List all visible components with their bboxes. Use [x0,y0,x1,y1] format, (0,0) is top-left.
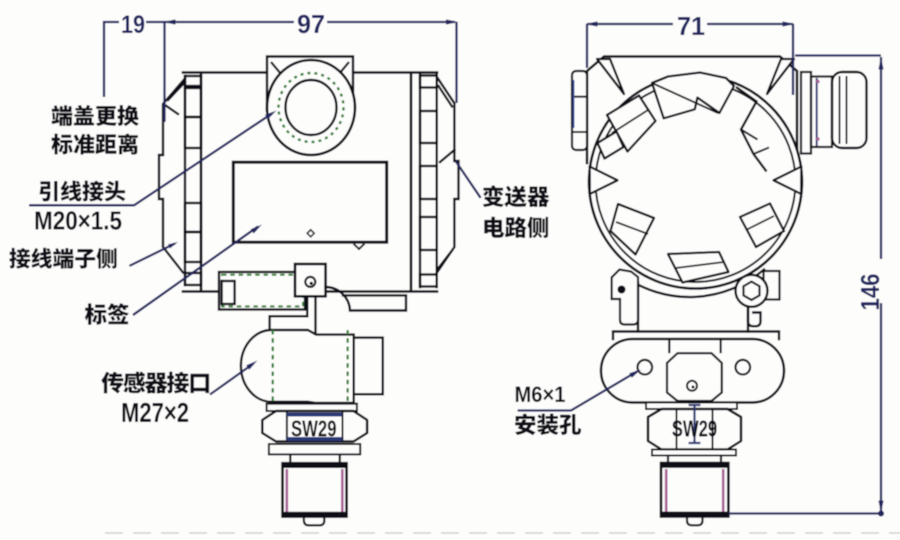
svg-text:M6×1: M6×1 [515,382,566,407]
svg-text:SW29: SW29 [291,416,337,442]
svg-text:SW29: SW29 [672,416,718,442]
svg-text:146: 146 [855,274,885,311]
svg-text:71: 71 [677,11,705,41]
svg-text:97: 97 [297,9,325,39]
svg-text:M27×2: M27×2 [121,397,189,428]
svg-text:19: 19 [121,11,145,39]
svg-text:M20×1.5: M20×1.5 [34,206,122,236]
